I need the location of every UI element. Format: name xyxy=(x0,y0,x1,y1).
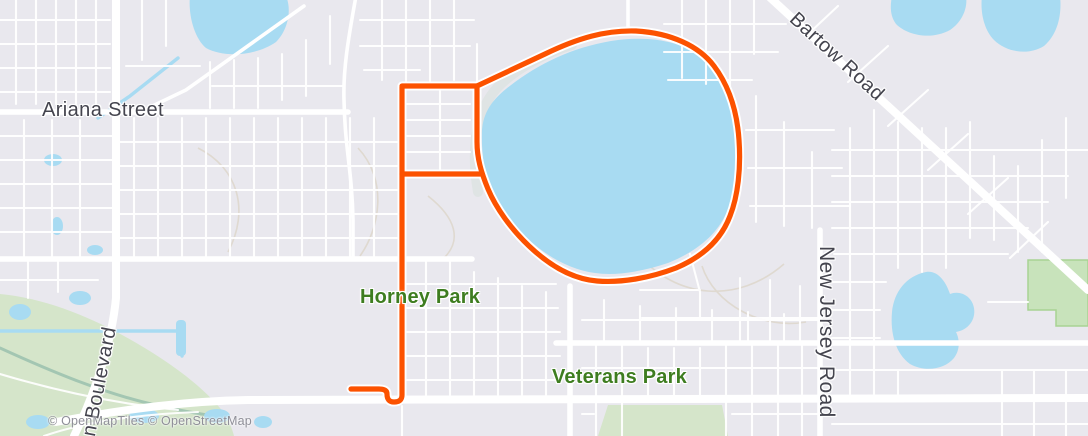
route-casing xyxy=(351,87,402,402)
park-area-veterans xyxy=(598,405,728,436)
pond-southeast xyxy=(892,272,975,369)
activity-route-finish xyxy=(351,87,402,402)
pond-north-2 xyxy=(982,0,1061,52)
pond-small xyxy=(254,416,272,428)
pond-small xyxy=(26,415,50,429)
minor-streets-midwest-grid xyxy=(120,118,400,256)
label-ariana-street: Ariana Street xyxy=(42,99,164,122)
label-horney-park: Horney Park xyxy=(360,286,480,309)
map-attribution[interactable]: © OpenMapTiles © OpenStreetMap xyxy=(48,414,252,428)
pond-small xyxy=(69,291,91,305)
park-area-southeast xyxy=(1028,260,1088,326)
label-new-jersey-road: New Jersey Road xyxy=(814,246,838,418)
map-svg xyxy=(0,0,1088,436)
pond-north-1 xyxy=(891,0,967,36)
label-veterans-park: Veterans Park xyxy=(552,366,687,389)
pond-small xyxy=(176,320,186,356)
map-canvas[interactable]: Ariana Street Bartow Road Horney Park Ve… xyxy=(0,0,1088,436)
pond-small xyxy=(87,245,103,255)
pond-small xyxy=(9,304,31,320)
